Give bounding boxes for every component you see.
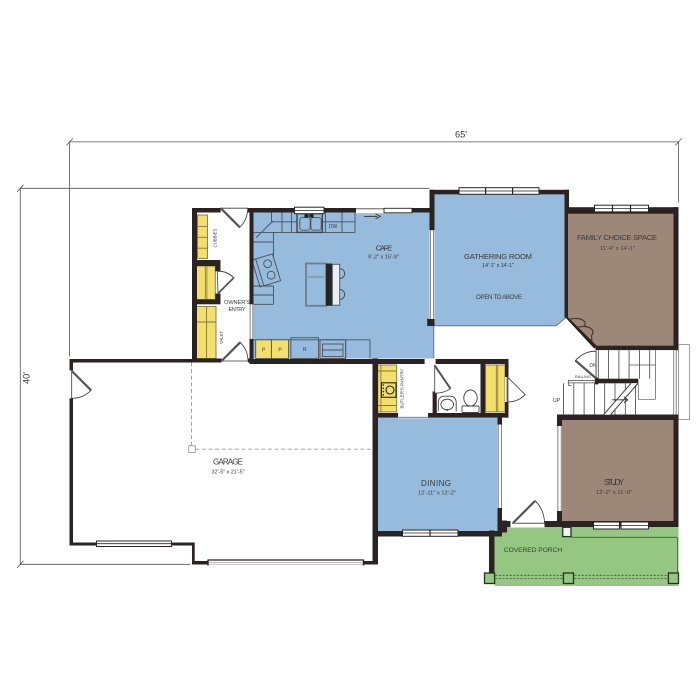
svg-text:12'-11" x 12'-2": 12'-11" x 12'-2" (418, 491, 456, 497)
svg-text:40': 40' (22, 372, 32, 384)
svg-text:BUTLER'S PANTRY: BUTLER'S PANTRY (400, 368, 405, 408)
svg-text:14'-1" x 14'-1": 14'-1" x 14'-1" (482, 263, 514, 269)
svg-text:DW: DW (329, 224, 338, 230)
svg-text:GARAGE: GARAGE (213, 458, 243, 467)
svg-text:DN: DN (589, 363, 597, 369)
svg-text:RAILING: RAILING (575, 375, 591, 379)
svg-text:R: R (303, 347, 307, 353)
svg-text:9'-2" x 15'-9": 9'-2" x 15'-9" (368, 254, 399, 260)
svg-text:COVERED PORCH: COVERED PORCH (504, 547, 562, 554)
svg-text:CUBBIES: CUBBIES (213, 228, 218, 247)
svg-text:65': 65' (455, 130, 467, 140)
svg-text:FAMILY CHOICE SPACE: FAMILY CHOICE SPACE (577, 233, 657, 242)
svg-text:32'-5" x 21'-5": 32'-5" x 21'-5" (212, 470, 245, 476)
svg-text:GATHERING ROOM: GATHERING ROOM (464, 252, 532, 261)
svg-text:DINING: DINING (421, 479, 451, 488)
svg-text:ENTRY: ENTRY (229, 307, 246, 313)
svg-text:STUDY: STUDY (604, 478, 625, 487)
svg-text:CAFE: CAFE (376, 244, 393, 253)
svg-text:VALET: VALET (219, 331, 224, 344)
svg-text:UP: UP (553, 398, 561, 404)
svg-text:11'-4" x 14'-1": 11'-4" x 14'-1" (600, 246, 635, 252)
svg-text:OWNER'S: OWNER'S (224, 300, 250, 306)
svg-text:OPEN TO ABOVE: OPEN TO ABOVE (476, 294, 522, 301)
svg-text:12'-2" x 11'-0": 12'-2" x 11'-0" (596, 490, 632, 496)
